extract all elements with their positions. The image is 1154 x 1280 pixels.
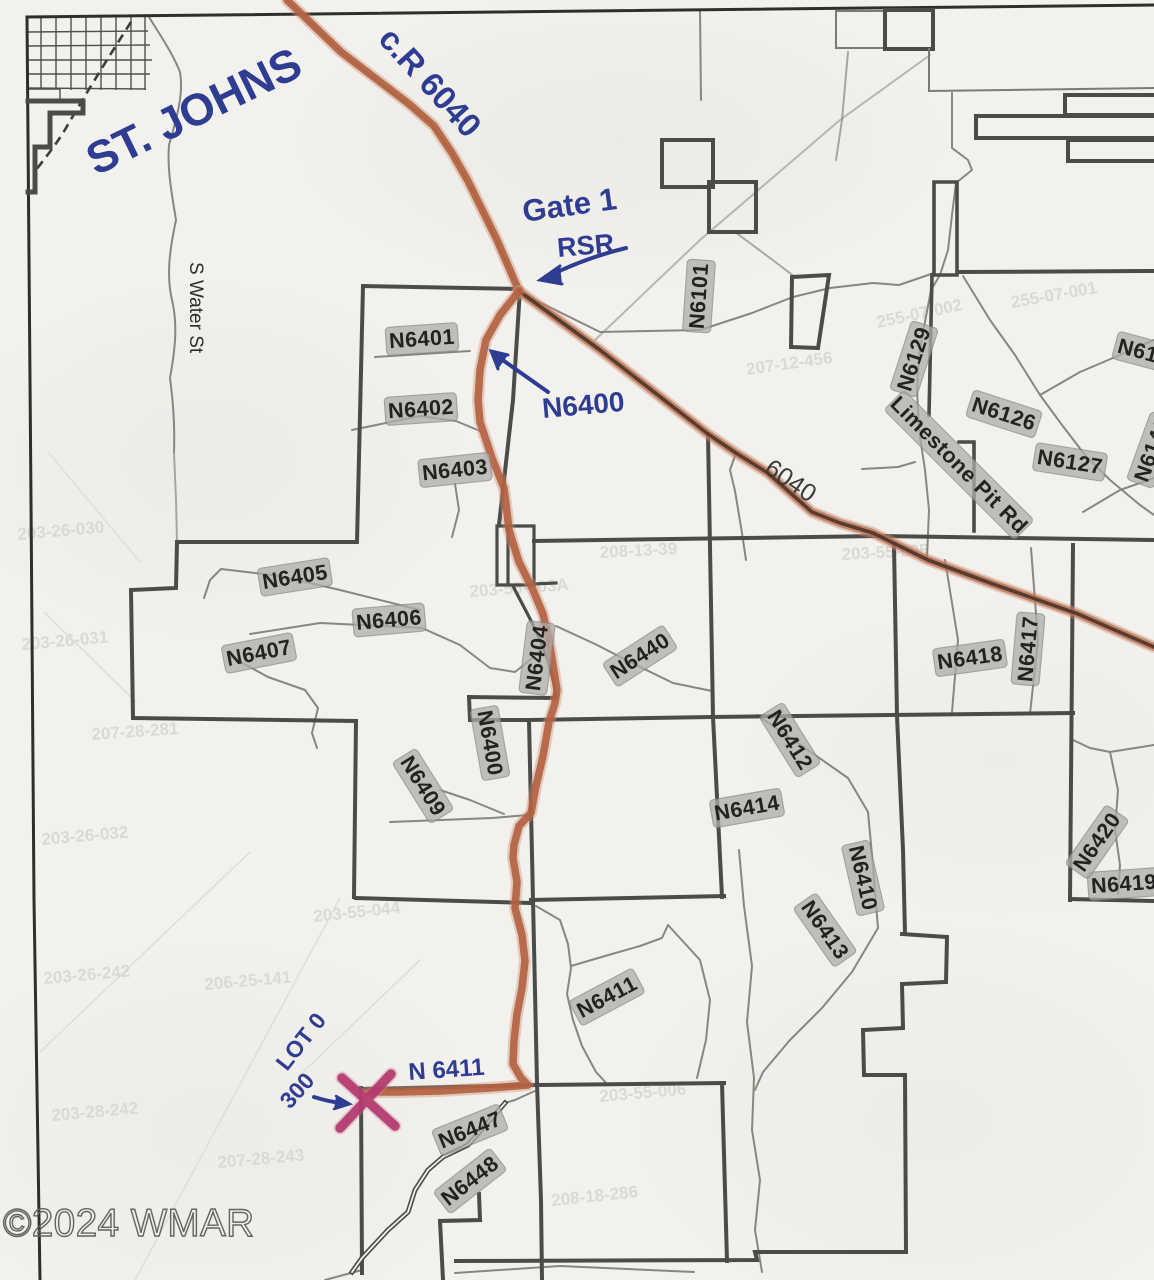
svg-text:N6401: N6401 (388, 325, 455, 354)
svg-text:N6419: N6419 (1090, 870, 1154, 899)
svg-text:S Water St: S Water St (185, 262, 206, 354)
svg-text:N6402: N6402 (387, 395, 454, 424)
svg-text:N 6411: N 6411 (408, 1054, 486, 1086)
svg-text:©2024 WMAR: ©2024 WMAR (3, 1202, 255, 1245)
svg-text:208-13-39: 208-13-39 (599, 539, 677, 562)
svg-text:N6101: N6101 (685, 262, 714, 329)
svg-text:RSR: RSR (556, 228, 615, 263)
